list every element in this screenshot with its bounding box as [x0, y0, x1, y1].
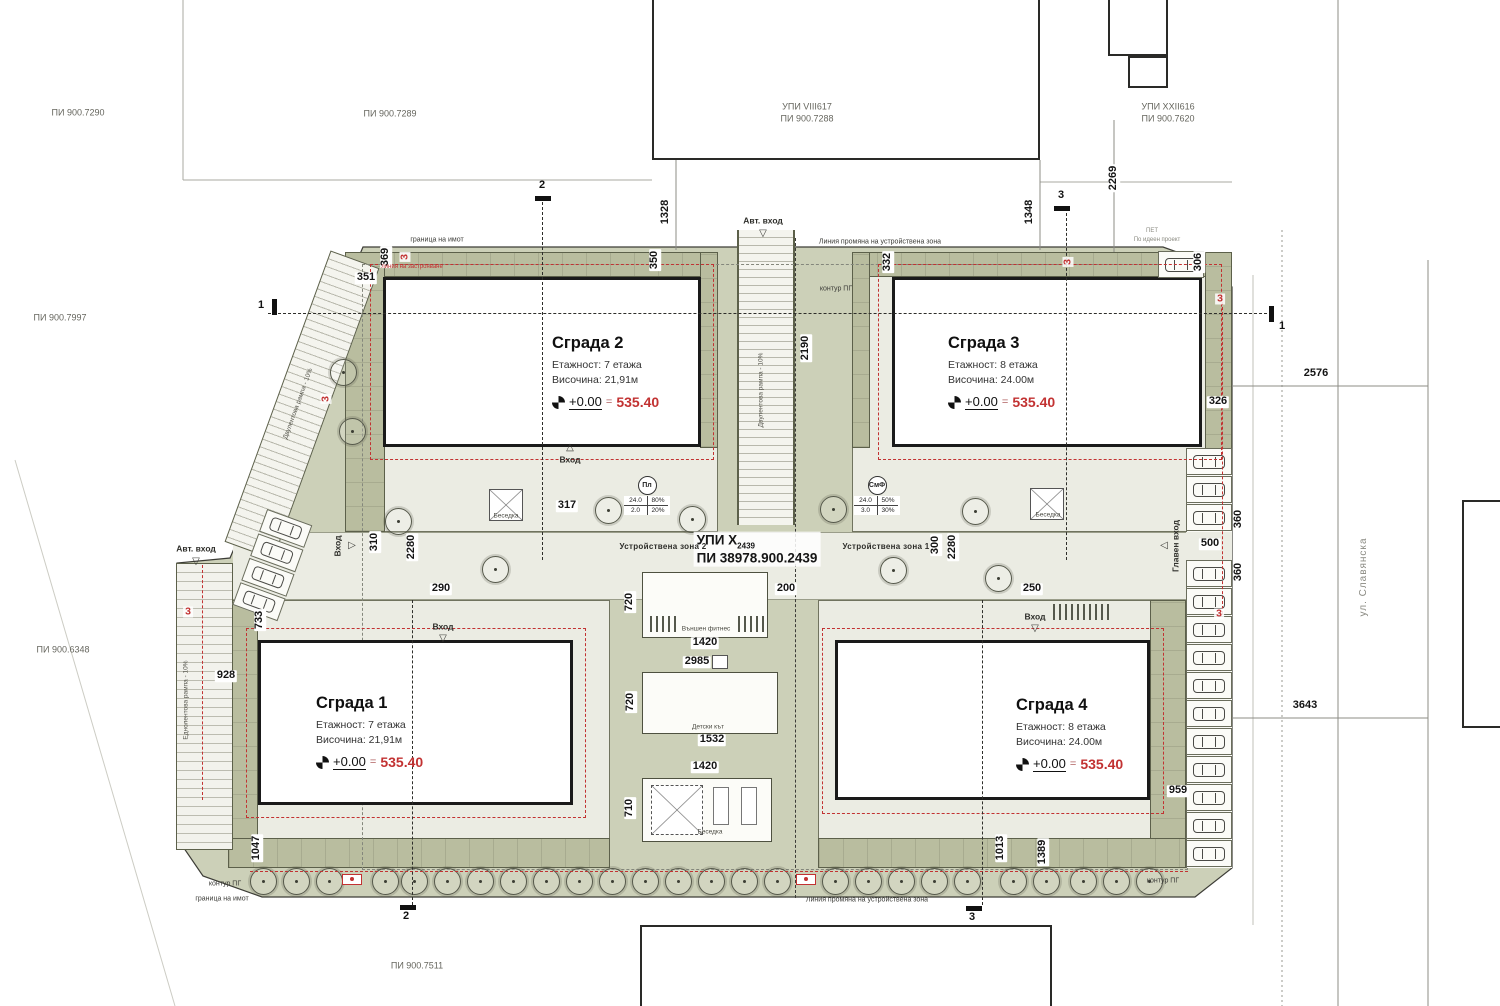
rack-bar	[1053, 604, 1055, 620]
bike-rack-icon	[1053, 604, 1109, 620]
tree-icon	[985, 565, 1012, 592]
tree-icon	[764, 868, 791, 895]
rack-bar	[1071, 604, 1073, 620]
building-name: Сграда 3	[948, 334, 1055, 353]
dimension-label: 306	[1193, 251, 1205, 273]
building-name: Сграда 4	[1016, 696, 1123, 715]
parking-stall	[1186, 560, 1232, 587]
annotation-label: контур ПГ	[209, 880, 241, 887]
building-height: Височина: 21,91м	[552, 373, 659, 388]
tree-icon	[679, 506, 706, 533]
level-zero: +0.00	[569, 394, 602, 410]
annotation-label: ПИ 900.7997	[34, 313, 87, 322]
annotation-label: ПИ 900.7288	[781, 114, 834, 123]
car-icon	[1193, 791, 1225, 805]
level-benchmark-icon	[948, 396, 961, 409]
tree-icon	[250, 868, 277, 895]
equals: =	[606, 396, 612, 408]
section-mark-number: 3	[1058, 190, 1064, 202]
annotation-label: Еднолентова рампа - 10%	[184, 660, 191, 739]
rack-bar	[662, 616, 664, 632]
entrance-arrow-icon: ▽	[192, 557, 200, 568]
rack-bar	[668, 616, 670, 632]
neighbour-building-right	[1462, 500, 1500, 728]
tree-icon	[595, 497, 622, 524]
annotation-label: ПИ 900.7289	[364, 109, 417, 118]
dimension-label: 351	[355, 272, 377, 284]
tree-icon	[1070, 868, 1097, 895]
table-cell: 50%	[878, 496, 898, 506]
section-mark-number: 3	[969, 912, 975, 924]
tree-icon	[888, 868, 915, 895]
annotation-label: ПЕТ	[1146, 228, 1158, 234]
site-plan-drawing: Пл 24.080% 2.020% СмФ 24.050% 3.030% УПИ…	[0, 0, 1500, 1006]
rack-bar	[744, 616, 746, 632]
annotation-label: Беседка	[1036, 513, 1061, 520]
pi-number: ПИ 38978.900.2439	[697, 550, 818, 565]
car-icon	[1193, 483, 1225, 497]
car-icon	[1193, 651, 1225, 665]
building-height: Височина: 24.00м	[948, 373, 1055, 388]
table-cell: 30%	[878, 506, 898, 515]
car-icon	[1193, 455, 1225, 469]
dimension-label: 2190	[800, 334, 812, 362]
parking-stall	[1186, 840, 1232, 867]
equals: =	[1070, 758, 1076, 770]
building-band	[228, 838, 610, 868]
annotation-label: 3	[1214, 608, 1224, 619]
section-mark-number: 1	[1279, 321, 1285, 333]
car-icon	[250, 565, 285, 589]
level-zero: +0.00	[965, 394, 998, 410]
section-mark-number: 2	[539, 180, 545, 192]
annotation-label: контур ПГ	[820, 285, 852, 292]
level-zero: +0.00	[333, 754, 366, 770]
entrance-label: Вход	[1024, 613, 1045, 622]
tree-icon	[698, 868, 725, 895]
dimension-label: 250	[1021, 583, 1043, 595]
tree-icon	[921, 868, 948, 895]
dimension-label: 733	[254, 609, 266, 631]
dimension-label: 2280	[947, 533, 959, 561]
tree-icon	[401, 868, 428, 895]
zone-symbol: Пл	[638, 476, 657, 495]
rack-bar	[1077, 604, 1079, 620]
rack-bar	[650, 616, 652, 632]
building-floors: Етажност: 8 етажа	[1016, 720, 1123, 735]
entrance-label: Вход	[334, 535, 343, 556]
car-icon	[1193, 735, 1225, 749]
section-mark-bar	[1054, 206, 1070, 211]
parking-stall	[1186, 504, 1232, 531]
site-identifier: УПИ X2439 ПИ 38978.900.2439	[694, 532, 821, 567]
annotation-label: Беседка	[698, 830, 723, 837]
dimension-label: 959	[1167, 785, 1189, 797]
annotation-label: Беседка	[494, 514, 519, 521]
tree-icon	[962, 498, 989, 525]
rack-bar	[656, 616, 658, 632]
hydrant-icon	[796, 874, 816, 885]
entrance-label: Авт. вход	[176, 545, 216, 554]
entrance-label: Вход	[432, 623, 453, 632]
tree-icon	[339, 418, 366, 445]
dimension-label: 2269	[1108, 164, 1120, 192]
dimension-label: 350	[649, 249, 661, 271]
annotation-label: линия на застрояване	[381, 264, 443, 270]
entrance-arrow-icon: ▽	[759, 229, 767, 240]
section-mark-bar	[1269, 306, 1274, 322]
dimension-label: 1328	[660, 198, 672, 226]
dimension-label: 360	[1233, 508, 1245, 530]
car-icon	[1193, 763, 1225, 777]
building-floors: Етажност: 7 етажа	[316, 718, 423, 733]
dimension-label: 317	[556, 500, 578, 512]
annotation-label: 3	[320, 394, 331, 404]
annotation-label: Линия промяна на устройствена зона	[819, 238, 941, 245]
annotation-label: Устройствена зона 2	[620, 543, 707, 551]
bike-rack-icon	[738, 616, 764, 632]
entrance-arrow-icon: ▷	[348, 541, 356, 552]
upi-number: УПИ X2439	[697, 533, 818, 551]
building-4-info: Сграда 4 Етажност: 8 етажа Височина: 24.…	[1016, 696, 1123, 772]
tree-icon	[1000, 868, 1027, 895]
building-band	[700, 252, 718, 448]
table-cell: 2.0	[624, 506, 648, 515]
annotation-label: ПИ 900.7620	[1142, 114, 1195, 123]
parking-stall	[1186, 644, 1232, 671]
neighbour-building-bottom	[640, 925, 1052, 1006]
tree-icon	[434, 868, 461, 895]
building-level: +0.00 = 535.40	[552, 394, 659, 410]
annotation-label: граница на имот	[195, 895, 248, 902]
annotation-label: 3	[399, 252, 410, 262]
building-level: +0.00 = 535.40	[316, 754, 423, 770]
parking-stall	[1186, 448, 1232, 475]
tree-icon	[566, 868, 593, 895]
dimension-label: 290	[430, 583, 452, 595]
table-cell: 24.0	[854, 496, 878, 506]
hydrant-icon	[342, 874, 362, 885]
building-floors: Етажност: 8 етажа	[948, 358, 1055, 373]
tree-icon	[467, 868, 494, 895]
tree-icon	[731, 868, 758, 895]
tree-icon	[665, 868, 692, 895]
entrance-arrow-icon: △	[566, 443, 574, 454]
section-mark-number: 2	[403, 911, 409, 923]
parking-stall	[1186, 588, 1232, 615]
tree-icon	[500, 868, 527, 895]
tree-icon	[385, 508, 412, 535]
building-2-info: Сграда 2 Етажност: 7 етажа Височина: 21,…	[552, 334, 659, 410]
parking-stall	[1186, 812, 1232, 839]
annotation-label: Двулентова рампа - 10%	[759, 353, 766, 428]
dimension-label: 720	[625, 691, 637, 713]
annotation-label: 3	[1062, 257, 1073, 267]
annotation-label: 3	[183, 606, 193, 617]
annotation-label: контур ПГ	[1147, 877, 1179, 884]
dimension-label: 1532	[698, 734, 726, 746]
building-height: Височина: 21,91м	[316, 733, 423, 748]
tree-icon	[330, 359, 357, 386]
rack-bar	[1083, 604, 1085, 620]
car-icon	[1193, 679, 1225, 693]
entrance-label: Авт. вход	[743, 217, 783, 226]
building-height: Височина: 24.00м	[1016, 735, 1123, 750]
dimension-label: 1348	[1024, 198, 1036, 226]
dimension-label: 3643	[1291, 700, 1319, 712]
tree-icon	[316, 868, 343, 895]
tree-icon	[880, 557, 907, 584]
tree-icon	[482, 556, 509, 583]
dimension-label: 360	[1233, 561, 1245, 583]
table-cell: 20%	[648, 506, 668, 515]
dimension-label: 720	[624, 591, 636, 613]
building-floors: Етажност: 7 етажа	[552, 358, 659, 373]
dimension-label: 1420	[691, 637, 719, 649]
annotation-label: УПИ VIII617	[782, 102, 832, 111]
entrance-arrow-icon: ◁	[1160, 541, 1168, 552]
annotation-label: Детски кът	[692, 725, 724, 732]
rack-bar	[756, 616, 758, 632]
rack-bar	[1107, 604, 1109, 620]
level-benchmark-icon	[552, 396, 565, 409]
rack-bar	[1089, 604, 1091, 620]
gazebo-icon	[651, 785, 703, 835]
dimension-label: 1389	[1037, 838, 1049, 866]
tree-icon	[1103, 868, 1130, 895]
rack-bar	[674, 616, 676, 632]
rack-bar	[1065, 604, 1067, 620]
dimension-label: 1013	[995, 834, 1007, 862]
car-icon	[1193, 623, 1225, 637]
level-value: 535.40	[1080, 756, 1123, 772]
section-mark-bar	[400, 905, 416, 910]
dimension-label: 928	[215, 670, 237, 682]
section-mark-bar	[535, 196, 551, 201]
central-ramp	[737, 230, 795, 525]
dimension-label: 2576	[1302, 368, 1330, 380]
level-value: 535.40	[380, 754, 423, 770]
zone-parameters-table: Пл 24.080% 2.020%	[624, 476, 670, 515]
annotation-label: 3	[1215, 293, 1225, 304]
dimension-label: 200	[775, 583, 797, 595]
dimension-label: 2985	[683, 656, 711, 668]
neighbour-building-topright-a	[1108, 0, 1168, 56]
tree-icon	[372, 868, 399, 895]
annotation-label: ПИ 900.6348	[37, 645, 90, 654]
level-zero: +0.00	[1033, 756, 1066, 772]
entrance-arrow-icon: ▽	[439, 634, 447, 645]
annotation-label: граница на имот	[410, 236, 463, 243]
annotation-label: Линия промяна на устройствена зона	[806, 896, 928, 903]
parking-stall	[1186, 616, 1232, 643]
table-cell: 80%	[648, 496, 668, 506]
bike-rack-icon	[650, 616, 676, 632]
car-icon	[259, 541, 294, 565]
parking-stall	[1186, 476, 1232, 503]
building-band	[852, 252, 870, 448]
level-value: 535.40	[1012, 394, 1055, 410]
equals: =	[1002, 396, 1008, 408]
bench-icon	[713, 787, 729, 825]
table-cell: 24.0	[624, 496, 648, 506]
rack-bar	[1095, 604, 1097, 620]
section-mark-bar	[272, 299, 277, 315]
tree-icon	[533, 868, 560, 895]
dimension-label: 300	[930, 534, 942, 556]
annotation-label: УПИ XXII616	[1141, 102, 1194, 111]
building-1-info: Сграда 1 Етажност: 7 етажа Височина: 21,…	[316, 694, 423, 770]
zone-parameters-table: СмФ 24.050% 3.030%	[854, 476, 900, 515]
dimension-label: 332	[882, 251, 894, 273]
parking-stall	[1186, 784, 1232, 811]
rack-bar	[762, 616, 764, 632]
building-3-info: Сграда 3 Етажност: 8 етажа Височина: 24.…	[948, 334, 1055, 410]
car-icon	[1193, 707, 1225, 721]
section-mark-bar	[966, 906, 982, 911]
rack-bar	[1059, 604, 1061, 620]
entrance-label: Главен вход	[1172, 520, 1181, 572]
car-icon	[268, 516, 303, 540]
zone-ratio-grid: 24.050% 3.030%	[854, 496, 900, 515]
neighbour-building-top	[652, 0, 1040, 160]
building-level: +0.00 = 535.40	[1016, 756, 1123, 772]
car-icon	[1193, 567, 1225, 581]
car-icon	[1193, 847, 1225, 861]
rack-bar	[750, 616, 752, 632]
tree-icon	[820, 496, 847, 523]
annotation-label: ПИ 900.7511	[391, 961, 443, 970]
rack-bar	[738, 616, 740, 632]
car-icon	[1193, 511, 1225, 525]
entrance-arrow-icon: ▽	[1031, 624, 1039, 635]
dimension-label: 710	[624, 797, 636, 819]
table-cell: 3.0	[854, 506, 878, 515]
tree-icon	[632, 868, 659, 895]
dimension-label: 310	[369, 531, 381, 553]
entrance-label: Вход	[559, 456, 580, 465]
equals: =	[370, 756, 376, 768]
building-name: Сграда 1	[316, 694, 423, 713]
annotation-label: ПИ 900.7290	[52, 108, 105, 117]
annotation-label: Устройствена зона 1	[843, 543, 930, 551]
building-name: Сграда 2	[552, 334, 659, 353]
zone-ratio-grid: 24.080% 2.020%	[624, 496, 670, 515]
neighbour-building-topright-b	[1128, 56, 1168, 88]
dimension-label: 2280	[406, 533, 418, 561]
annotation-label: По идеен проект	[1134, 237, 1181, 243]
playground-equipment-icon	[712, 655, 728, 669]
building-level: +0.00 = 535.40	[948, 394, 1055, 410]
parking-stall	[1186, 728, 1232, 755]
dimension-label: 326	[1207, 396, 1229, 408]
car-icon	[1193, 595, 1225, 609]
annotation-label: Външен фитнес	[682, 627, 731, 634]
tree-icon	[954, 868, 981, 895]
zone-symbol: СмФ	[868, 476, 887, 495]
dimension-label: 500	[1199, 538, 1221, 550]
tree-icon	[822, 868, 849, 895]
dimension-label: 1047	[251, 834, 263, 862]
annotation-label: ул. Славянска	[1359, 537, 1370, 616]
parking-stall	[1186, 700, 1232, 727]
bench-icon	[741, 787, 757, 825]
tree-icon	[1033, 868, 1060, 895]
rack-bar	[1101, 604, 1103, 620]
level-benchmark-icon	[316, 756, 329, 769]
tree-icon	[283, 868, 310, 895]
car-icon	[1193, 819, 1225, 833]
parking-stall	[1186, 756, 1232, 783]
section-mark-number: 1	[258, 300, 264, 312]
level-benchmark-icon	[1016, 758, 1029, 771]
tree-icon	[599, 868, 626, 895]
level-value: 535.40	[616, 394, 659, 410]
building-band	[1150, 600, 1186, 868]
tree-icon	[855, 868, 882, 895]
dimension-label: 1420	[691, 761, 719, 773]
parking-stall	[1186, 672, 1232, 699]
